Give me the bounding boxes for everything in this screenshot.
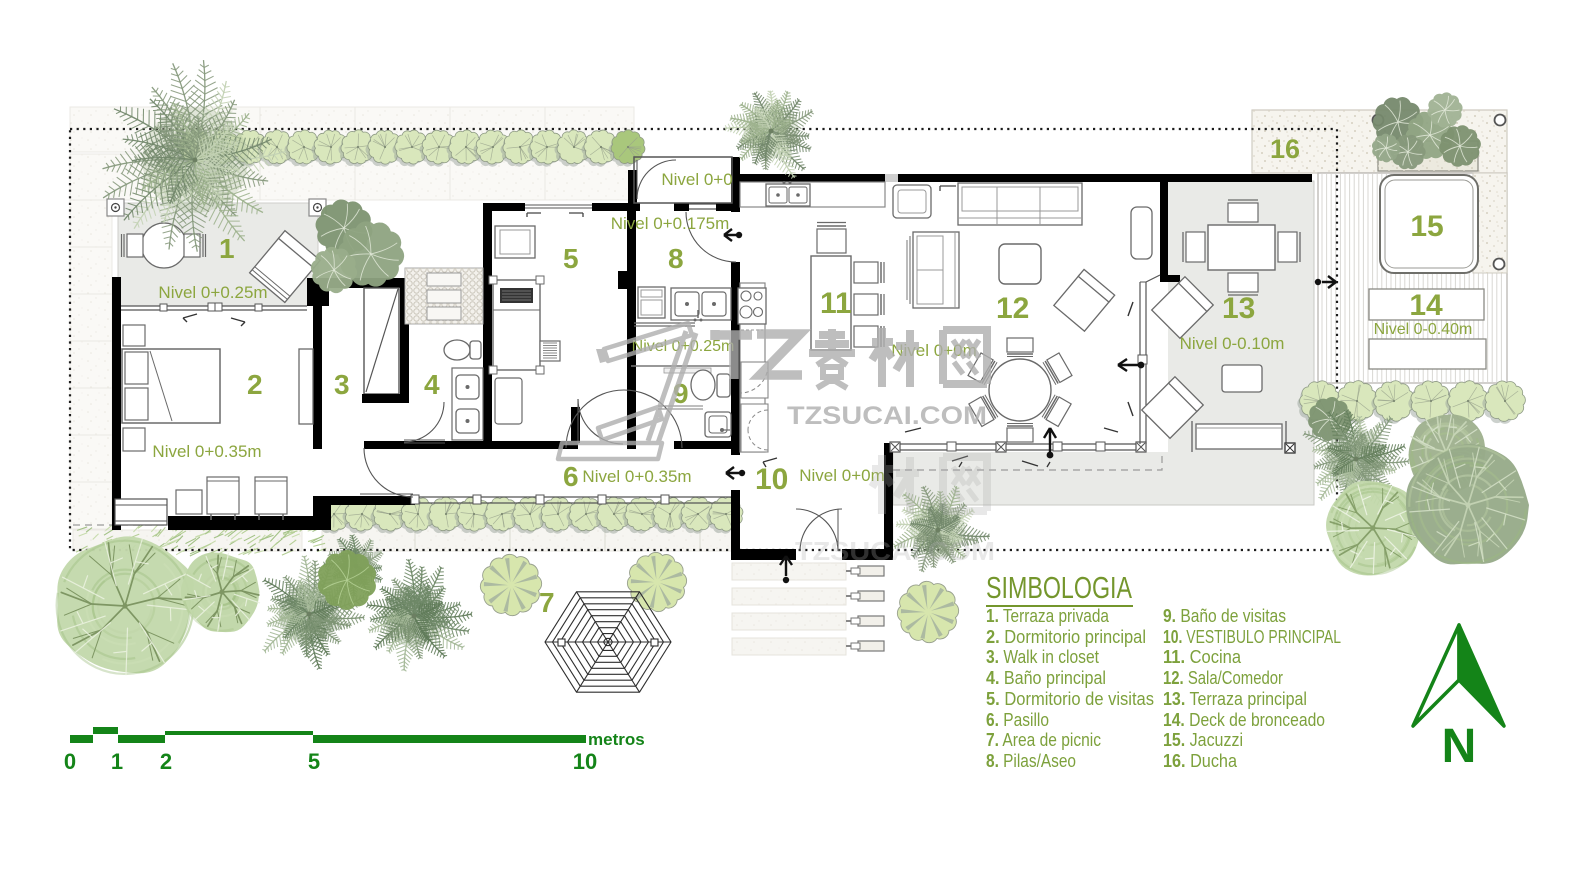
svg-text:10: 10: [573, 749, 597, 774]
svg-text:2: 2: [160, 749, 172, 774]
svg-text:4. Baño principal: 4. Baño principal: [986, 668, 1106, 688]
svg-text:2: 2: [247, 369, 263, 400]
svg-text:11: 11: [820, 287, 852, 320]
svg-text:3: 3: [334, 369, 350, 400]
svg-text:7: 7: [539, 587, 555, 618]
svg-text:5: 5: [308, 749, 320, 774]
svg-text:TZSUCAI.COM: TZSUCAI.COM: [795, 536, 995, 566]
svg-text:1: 1: [219, 233, 235, 264]
svg-text:11. Cocina: 11. Cocina: [1163, 647, 1242, 667]
svg-text:15. Jacuzzi: 15. Jacuzzi: [1163, 730, 1243, 750]
svg-text:Nivel 0+0.25m: Nivel 0+0.25m: [158, 283, 267, 302]
svg-text:14: 14: [1409, 289, 1443, 322]
svg-text:16. Ducha: 16. Ducha: [1163, 751, 1238, 771]
svg-text:3. Walk in closet: 3. Walk in closet: [986, 647, 1099, 667]
svg-text:7. Area de picnic: 7. Area de picnic: [986, 730, 1101, 750]
svg-text:6. Pasillo: 6. Pasillo: [986, 710, 1049, 730]
svg-text:13. Terraza principal: 13. Terraza principal: [1163, 689, 1307, 709]
svg-text:1. Terraza privada: 1. Terraza privada: [986, 606, 1110, 626]
svg-text:0: 0: [64, 749, 76, 774]
svg-text:Nivel 0+0.35m: Nivel 0+0.35m: [152, 442, 261, 461]
svg-text:2. Dormitorio principal: 2. Dormitorio principal: [986, 627, 1146, 647]
svg-text:Nivel 0+0: Nivel 0+0: [661, 170, 732, 189]
svg-text:TZSUCAI.COM: TZSUCAI.COM: [787, 402, 987, 430]
svg-text:12. Sala/Comedor: 12. Sala/Comedor: [1163, 668, 1283, 688]
svg-text:1: 1: [111, 749, 123, 774]
svg-text:16: 16: [1270, 134, 1300, 164]
svg-text:14. Deck de bronceado: 14. Deck de bronceado: [1163, 710, 1325, 730]
svg-text:6: 6: [563, 461, 579, 492]
svg-text:Nivel 0+0.35m: Nivel 0+0.35m: [582, 467, 691, 486]
svg-text:Nivel 0-0.10m: Nivel 0-0.10m: [1180, 334, 1285, 353]
svg-text:5. Dormitorio de visitas: 5. Dormitorio de visitas: [986, 689, 1154, 709]
svg-text:5: 5: [563, 243, 579, 274]
svg-text:8. Pilas/Aseo: 8. Pilas/Aseo: [986, 751, 1076, 771]
svg-text:15: 15: [1410, 210, 1443, 243]
svg-text:8: 8: [668, 243, 684, 274]
svg-text:Nivel 0-0.40m: Nivel 0-0.40m: [1374, 321, 1473, 338]
svg-text:10: 10: [755, 463, 788, 496]
svg-text:9. Baño de visitas: 9. Baño de visitas: [1163, 606, 1286, 626]
svg-text:4: 4: [424, 369, 440, 400]
svg-text:SIMBOLOGIA: SIMBOLOGIA: [986, 570, 1132, 605]
svg-text:12: 12: [996, 292, 1029, 325]
svg-text:13: 13: [1222, 292, 1255, 325]
svg-text:metros: metros: [588, 730, 645, 749]
svg-text:N: N: [1442, 720, 1477, 773]
svg-text:Nivel 0+0.175m: Nivel 0+0.175m: [611, 214, 730, 233]
svg-text:10. VESTIBULO PRINCIPAL: 10. VESTIBULO PRINCIPAL: [1163, 627, 1341, 647]
